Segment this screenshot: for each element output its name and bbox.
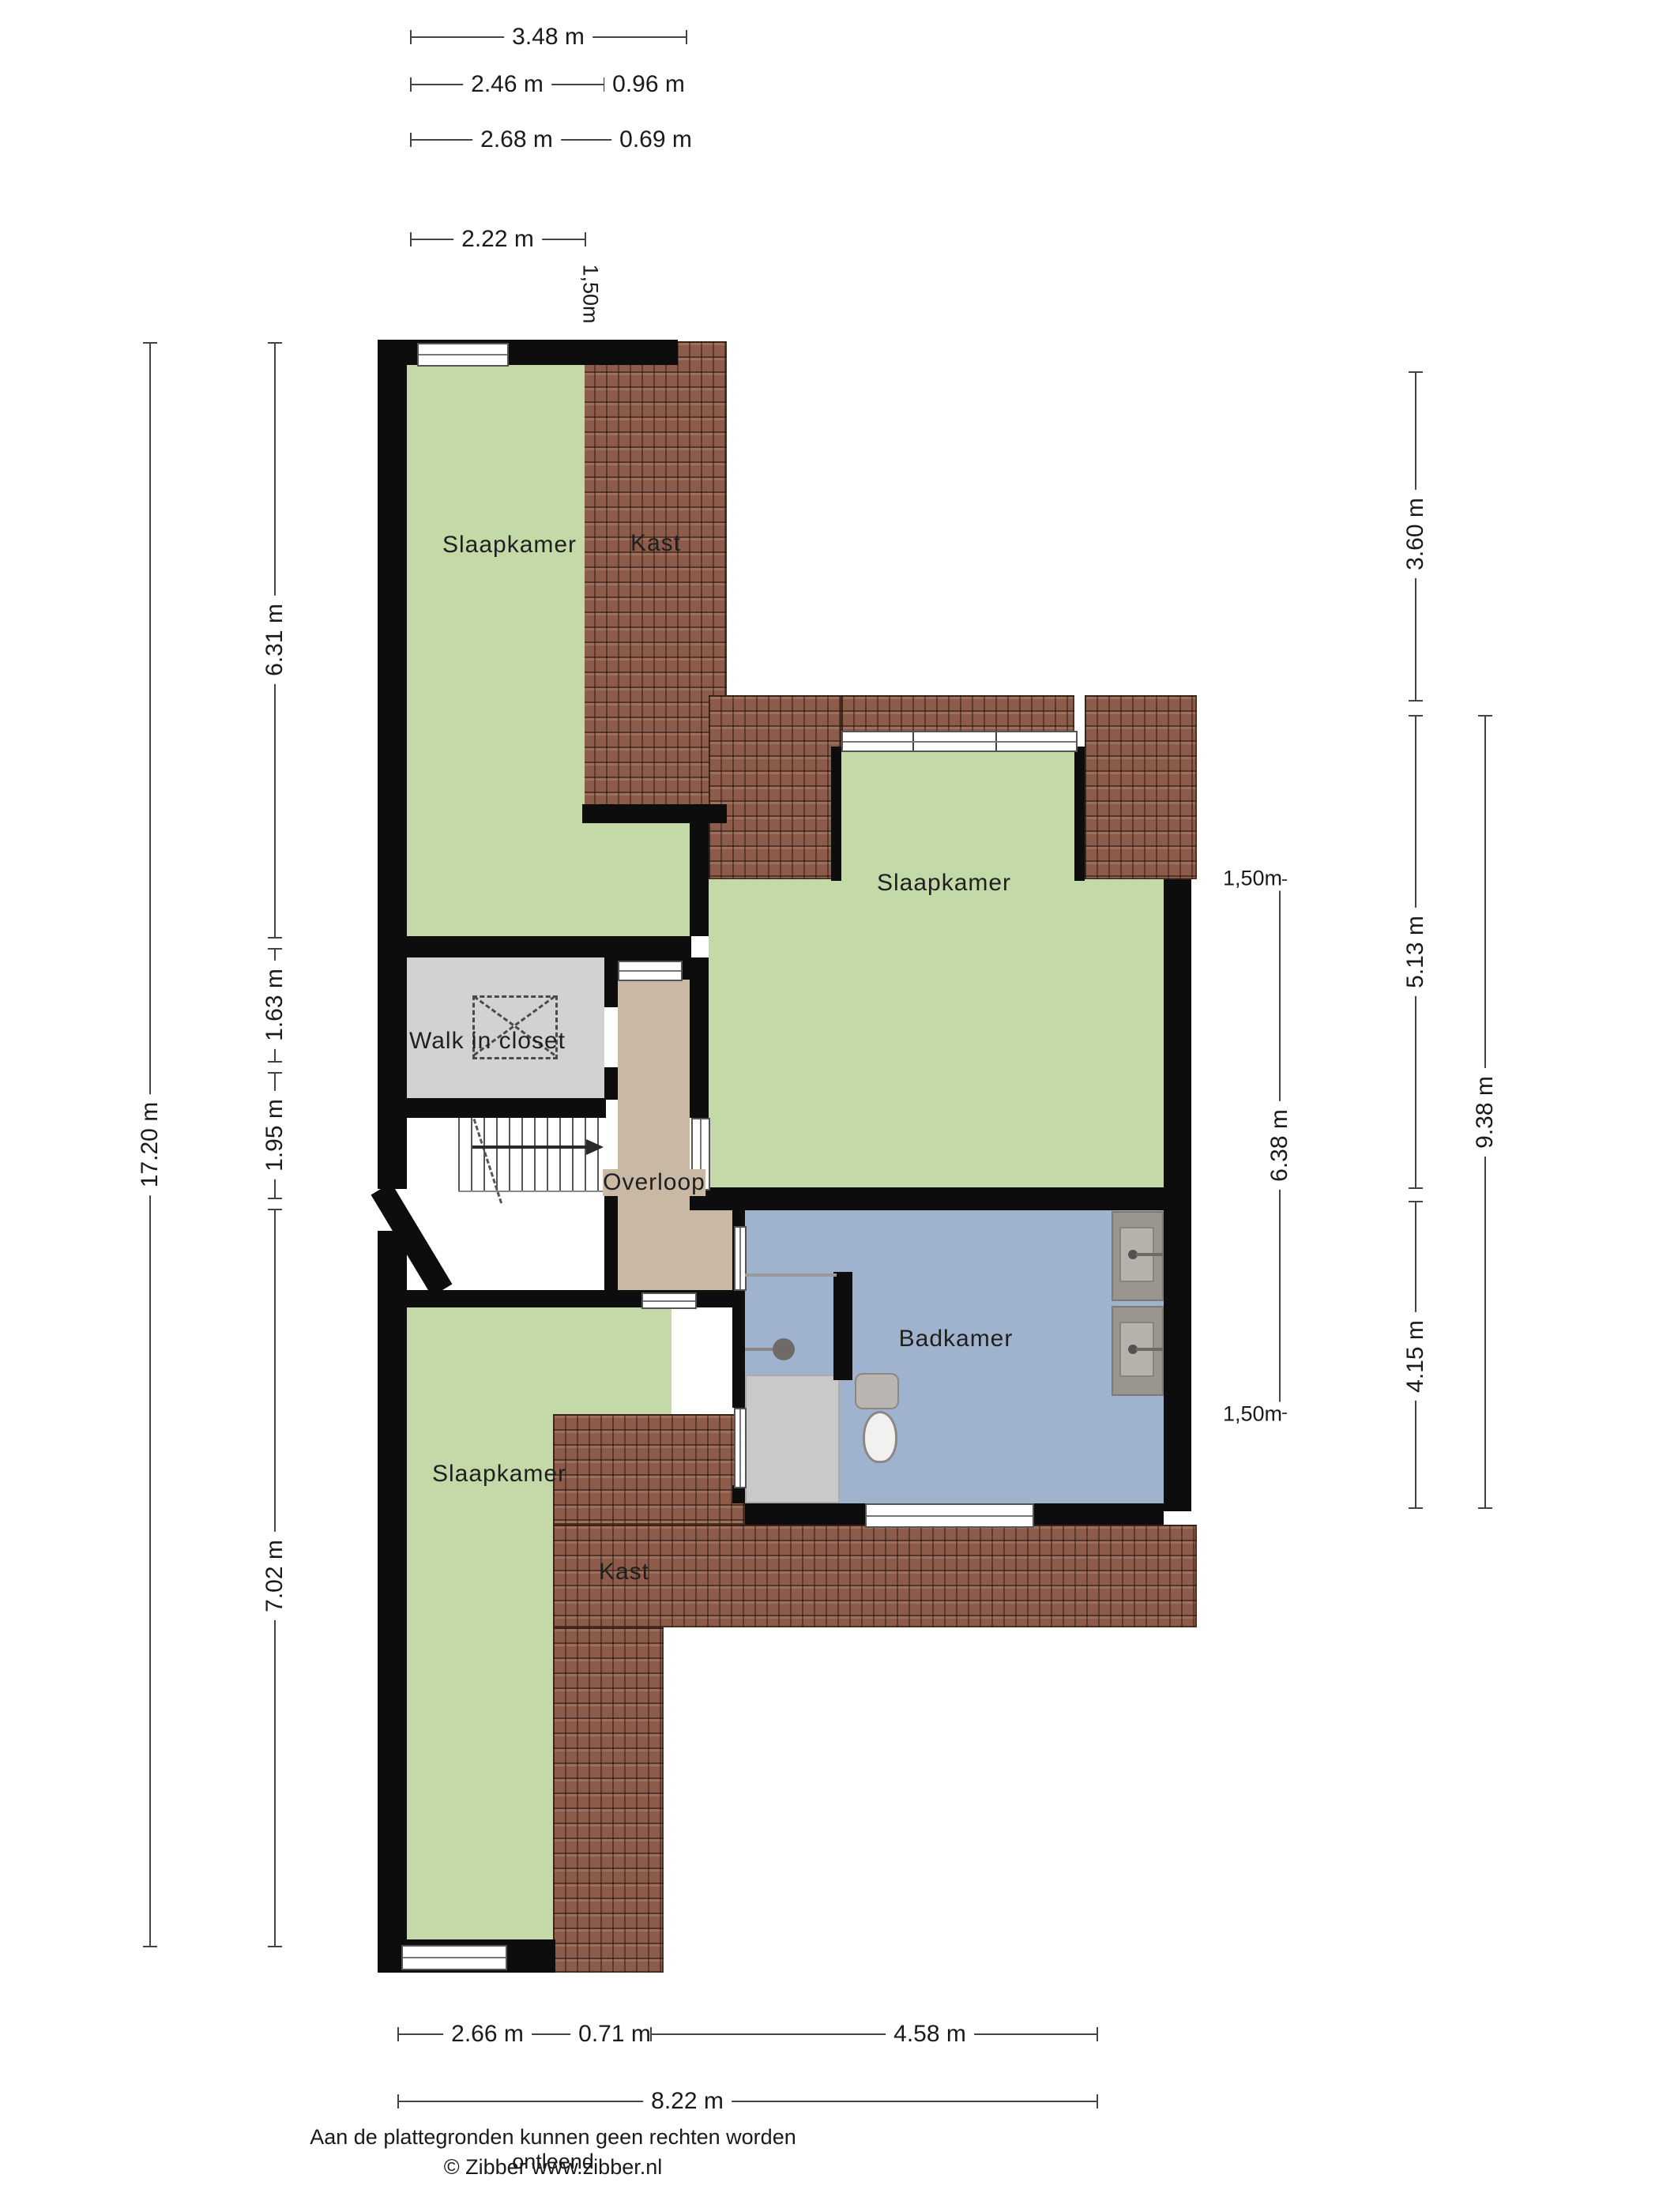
dim-label-6-38: 6.38 m — [1266, 1101, 1293, 1190]
wall-left-outer-lower — [378, 1231, 407, 1973]
wall-wic-overloop-b — [604, 1067, 618, 1100]
wall-s1-s2-divider — [690, 807, 709, 936]
wall-s1-wic-divider — [407, 936, 691, 957]
dim-label-1-95: 1.95 m — [261, 1091, 288, 1179]
wall-left-outer-upper — [378, 340, 407, 1189]
door-overloop-badkamer-icon — [734, 1226, 747, 1291]
room-slaapkamer-3-upper — [407, 1307, 671, 1414]
room-slaapkamer-1-lower — [407, 807, 690, 938]
label-slaapkamer-3: Slaapkamer — [432, 1461, 566, 1488]
window-bay-slaapkamer2-icon — [841, 731, 1078, 752]
wall-overloop-right — [690, 980, 709, 1118]
dim-label-5-13: 5.13 m — [1402, 908, 1429, 996]
shower-tray — [745, 1375, 840, 1503]
stairs-arrow-head-icon — [586, 1139, 604, 1155]
dim-label-17-20: 17.20 m — [137, 1094, 164, 1195]
roof-bottom-strip — [553, 1525, 1197, 1627]
dim-label-0-96: 0.96 m — [604, 71, 693, 98]
dim-label-9-38: 9.38 m — [1472, 1068, 1499, 1157]
sink-faucet-line-2 — [1136, 1348, 1163, 1351]
label-slaapkamer-2: Slaapkamer — [877, 870, 1011, 897]
height-marker-1-50-a: 1,50m — [1223, 867, 1282, 891]
dim-label-8-22: 8.22 m — [643, 2088, 732, 2115]
floorplan-canvas: Slaapkamer Kast Slaapkamer Walk in close… — [0, 0, 1659, 2212]
toilet-cistern-icon — [855, 1373, 899, 1409]
sink-faucet-line-1 — [1136, 1253, 1163, 1256]
wall-stairs-right — [604, 1187, 618, 1290]
roof-area-kast1 — [582, 341, 727, 807]
stairs-icon — [458, 1118, 604, 1192]
label-badkamer: Badkamer — [899, 1326, 1014, 1352]
dim-label-4-58: 4.58 m — [886, 2021, 974, 2048]
dim-label-6-31: 6.31 m — [261, 596, 288, 684]
roof-strip-above-bay — [841, 695, 1074, 735]
room-slaapkamer-3 — [407, 1414, 553, 1939]
roof-strip-top-right — [1085, 695, 1197, 879]
shower-head-icon — [773, 1338, 795, 1360]
label-slaapkamer-1: Slaapkamer — [442, 532, 577, 559]
door-overloop-slaapkamer3-icon — [641, 1292, 697, 1309]
dim-label-1-63: 1.63 m — [261, 961, 288, 1049]
roof-strip-top-left — [709, 695, 841, 879]
footer-copyright: © Zibber www.zibber.nl — [276, 2155, 829, 2180]
dim-label-0-69: 0.69 m — [611, 126, 700, 153]
room-slaapkamer-2-bay — [841, 749, 1074, 879]
wall-badkamer-left-b — [732, 1296, 745, 1408]
room-overloop — [618, 980, 690, 1293]
label-walk-in-closet: Walk in closet — [409, 1028, 566, 1055]
dim-label-3-48: 3.48 m — [504, 24, 592, 51]
window-badkamer-icon — [865, 1503, 1034, 1528]
dim-label-4-15: 4.15 m — [1402, 1312, 1429, 1401]
roof-bottom-left — [553, 1414, 745, 1525]
wall-wic-bottom — [407, 1098, 606, 1118]
dim-label-2-66: 2.66 m — [443, 2021, 532, 2048]
roof-area-kast2 — [553, 1627, 664, 1973]
shower-screen — [745, 1273, 837, 1277]
wall-badkamer-bottom-left — [745, 1503, 865, 1525]
stairs-direction-arrow — [472, 1145, 589, 1149]
door-overloop-top-icon — [618, 961, 683, 981]
dim-label-3-60: 3.60 m — [1402, 490, 1429, 578]
dim-line-4-58 — [650, 2033, 1098, 2035]
label-kast-1: Kast — [630, 530, 681, 557]
window-slaapkamer1-icon — [417, 343, 509, 367]
dim-label-2-22: 2.22 m — [453, 226, 542, 253]
wall-shower-stub — [833, 1272, 852, 1380]
dim-label-0-71: 0.71 m — [570, 2021, 659, 2048]
dim-label-7-02: 7.02 m — [261, 1532, 288, 1620]
wall-s2-badkamer-divider — [690, 1187, 1191, 1210]
label-kast-2: Kast — [599, 1559, 649, 1586]
dim-label-2-68: 2.68 m — [472, 126, 561, 153]
dim-label-2-46: 2.46 m — [463, 71, 551, 98]
dim-label-1-50-top: 1,50m — [578, 261, 603, 326]
wall-bay-stub-left — [831, 747, 841, 881]
window-slaapkamer3-icon — [401, 1945, 507, 1970]
label-overloop: Overloop — [603, 1169, 705, 1196]
floorplan-page: { "plan_type": "floorplan-second-floor",… — [0, 0, 1659, 2212]
dim-line-8-22 — [397, 2101, 1098, 2102]
room-slaapkamer-2 — [709, 879, 1164, 1187]
height-marker-1-50-b: 1,50m — [1223, 1402, 1282, 1427]
toilet-icon — [863, 1411, 897, 1463]
wall-right-outer — [1164, 879, 1191, 1511]
wall-bay-stub-right — [1074, 747, 1085, 881]
door-badkamer-lower-icon — [734, 1408, 747, 1488]
wall-badkamer-bottom-right — [1031, 1503, 1164, 1525]
